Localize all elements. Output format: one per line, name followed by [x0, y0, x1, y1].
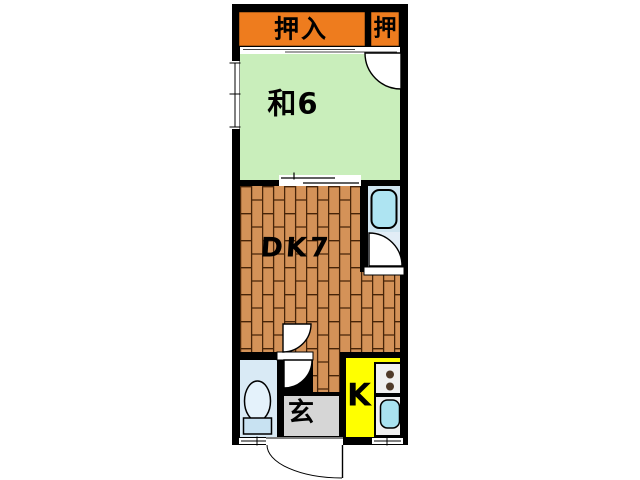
dk-doorway-threshold: [277, 352, 313, 360]
hallway-floor: [313, 352, 340, 392]
label-entrance: 玄: [288, 400, 314, 426]
toilet-icon: [245, 381, 271, 421]
label-dining-kitchen: DK7: [259, 235, 332, 262]
bath-wall: [360, 186, 369, 272]
label-kitchen: K: [347, 381, 371, 412]
toilet-tank-icon: [244, 418, 272, 434]
label-japanese-room: 和6: [267, 90, 318, 119]
stove-burner-icon: [386, 383, 394, 391]
label-closet-main: 押入: [274, 17, 328, 42]
kitchen-sink-icon: [381, 400, 400, 428]
entrance-door-icon: [266, 437, 343, 478]
label-closet-small: 押: [374, 18, 397, 41]
window-left-icon: [230, 61, 241, 129]
bathroom-threshold: [364, 267, 404, 275]
bathtub-icon: [372, 190, 397, 228]
stove-burner-icon: [386, 371, 394, 379]
floorplan: 押入 押 和6 DK7 玄 K: [0, 0, 640, 480]
